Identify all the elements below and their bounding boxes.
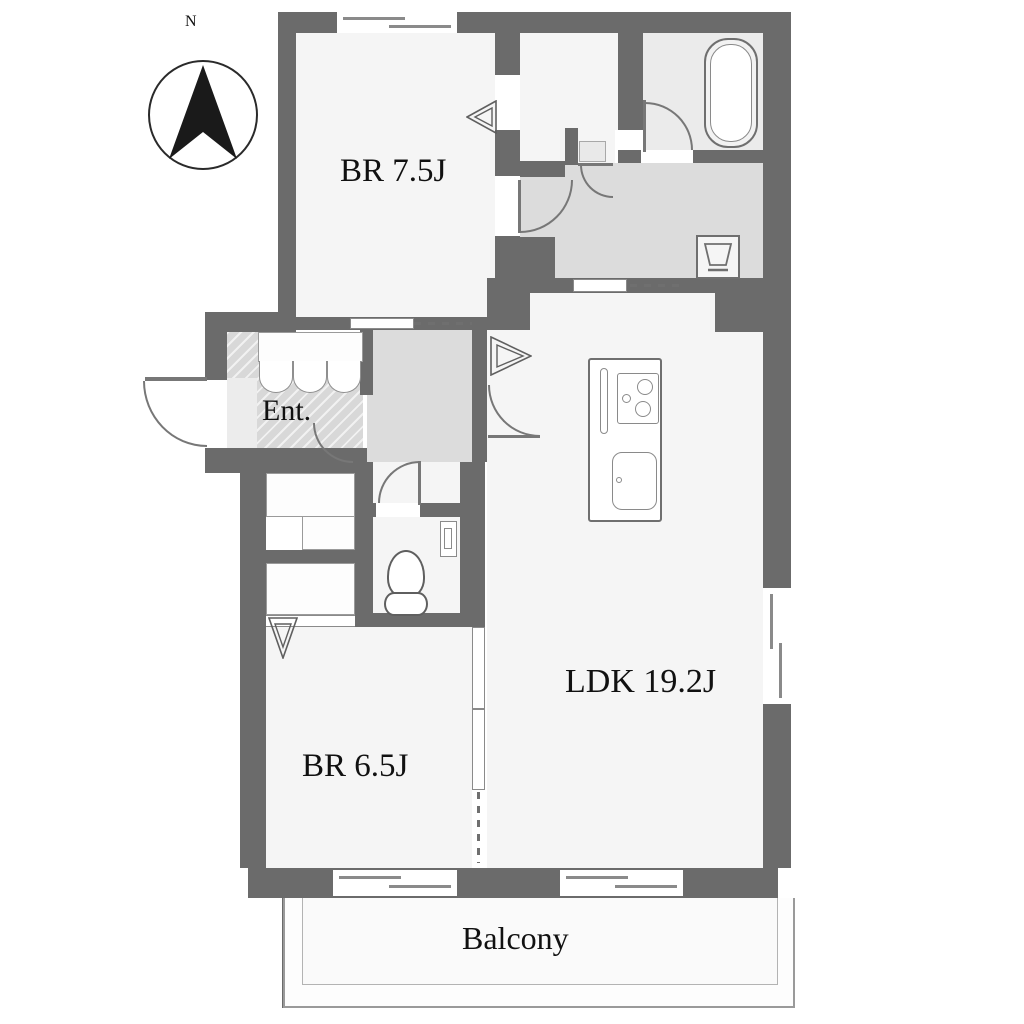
compass-north-arrow-icon	[168, 62, 238, 162]
window-line	[779, 643, 782, 698]
window-br65-balcony	[333, 870, 457, 896]
washing-machine-pan	[696, 235, 740, 279]
window-ldk-balcony	[560, 870, 683, 896]
burner	[635, 401, 651, 417]
opening-bath-door	[641, 150, 693, 163]
sink	[612, 452, 657, 510]
room-label-br65: BR 6.5J	[302, 750, 408, 783]
kitchen-island	[588, 358, 662, 522]
bathtub-inner	[710, 44, 752, 142]
sliding-door-ldk-top	[573, 279, 627, 292]
bathtub	[704, 38, 758, 148]
window-ldk-right	[763, 588, 791, 704]
toilet-base	[384, 592, 428, 616]
sliding-door-br75	[350, 318, 414, 329]
wall-bottom	[248, 868, 778, 898]
toilet-shelf-inner	[444, 528, 452, 549]
wall-wash-bath	[618, 33, 643, 130]
opening-toilet-door	[376, 503, 420, 517]
washbasin	[579, 141, 606, 162]
compass-n-label: N	[185, 14, 197, 30]
room-label-ent: Ent.	[262, 396, 311, 426]
wall-br75-right-a	[495, 33, 520, 75]
sliding-partition-dashes	[477, 792, 480, 863]
shoe-cabinet	[258, 332, 363, 362]
window-line	[566, 876, 628, 879]
wall-block-b	[487, 278, 530, 330]
washroom-floor	[520, 33, 618, 130]
window-line	[343, 17, 405, 20]
wall-toilet-left	[355, 462, 373, 613]
window-line	[389, 25, 451, 28]
wall-left-lower	[240, 462, 266, 868]
wall-ldk-corner	[715, 293, 763, 332]
shoe-cabinet-door-arc	[327, 361, 361, 393]
washroom-floor-ext	[520, 130, 565, 163]
kitchen-counter-bar	[600, 368, 608, 434]
room-label-br75: BR 7.5J	[340, 155, 446, 188]
faucet	[616, 477, 622, 483]
wall-wash-pillar	[565, 128, 578, 165]
burner	[637, 379, 653, 395]
floor-plan: N BR 7.5J Ent. LDK 19.2J BR 6.5J Balcony	[0, 0, 1024, 1024]
entrance-step	[227, 378, 257, 450]
folding-door-icon	[466, 100, 497, 134]
shoe-cabinet-door-arc	[259, 361, 293, 393]
opening-br75-closet	[495, 75, 520, 130]
burner	[622, 394, 631, 403]
sliding-partition-br65-ldk	[472, 627, 485, 790]
stove	[617, 373, 659, 424]
wall-toilet-right	[460, 462, 485, 627]
shoe-cabinet-door-arc	[293, 361, 327, 393]
sliding-door-ldk-top-track	[630, 284, 680, 287]
window-line	[389, 885, 451, 888]
wall-ent-left-a	[205, 330, 227, 382]
sliding-door-br75-track	[414, 322, 472, 325]
window-br75-top	[337, 12, 457, 33]
partition-divider	[473, 708, 484, 710]
room-label-ldk: LDK 19.2J	[565, 665, 716, 699]
toilet	[384, 550, 428, 618]
wall-block-a	[495, 237, 555, 278]
wall-corridor-ldk	[472, 317, 487, 462]
window-line	[339, 876, 401, 879]
toilet-bowl	[387, 550, 425, 598]
room-label-balcony: Balcony	[462, 922, 569, 954]
opening-sanitary-door	[495, 176, 520, 236]
window-line	[770, 594, 773, 649]
window-line	[615, 885, 677, 888]
wall-right	[763, 12, 791, 868]
toilet-shelf	[440, 521, 457, 557]
opening-entrance-door	[205, 380, 227, 448]
folding-door-icon	[490, 336, 532, 376]
bedroom-6-5-closet	[266, 563, 355, 615]
wall-wash-ext-bottom	[520, 161, 565, 177]
folding-door-icon	[268, 617, 298, 659]
entrance-door-arc	[143, 381, 207, 447]
storage-closet-step	[302, 516, 355, 550]
storage-closet	[266, 473, 355, 517]
wall-left-upper	[278, 12, 296, 330]
wall-between-closets	[266, 550, 355, 563]
